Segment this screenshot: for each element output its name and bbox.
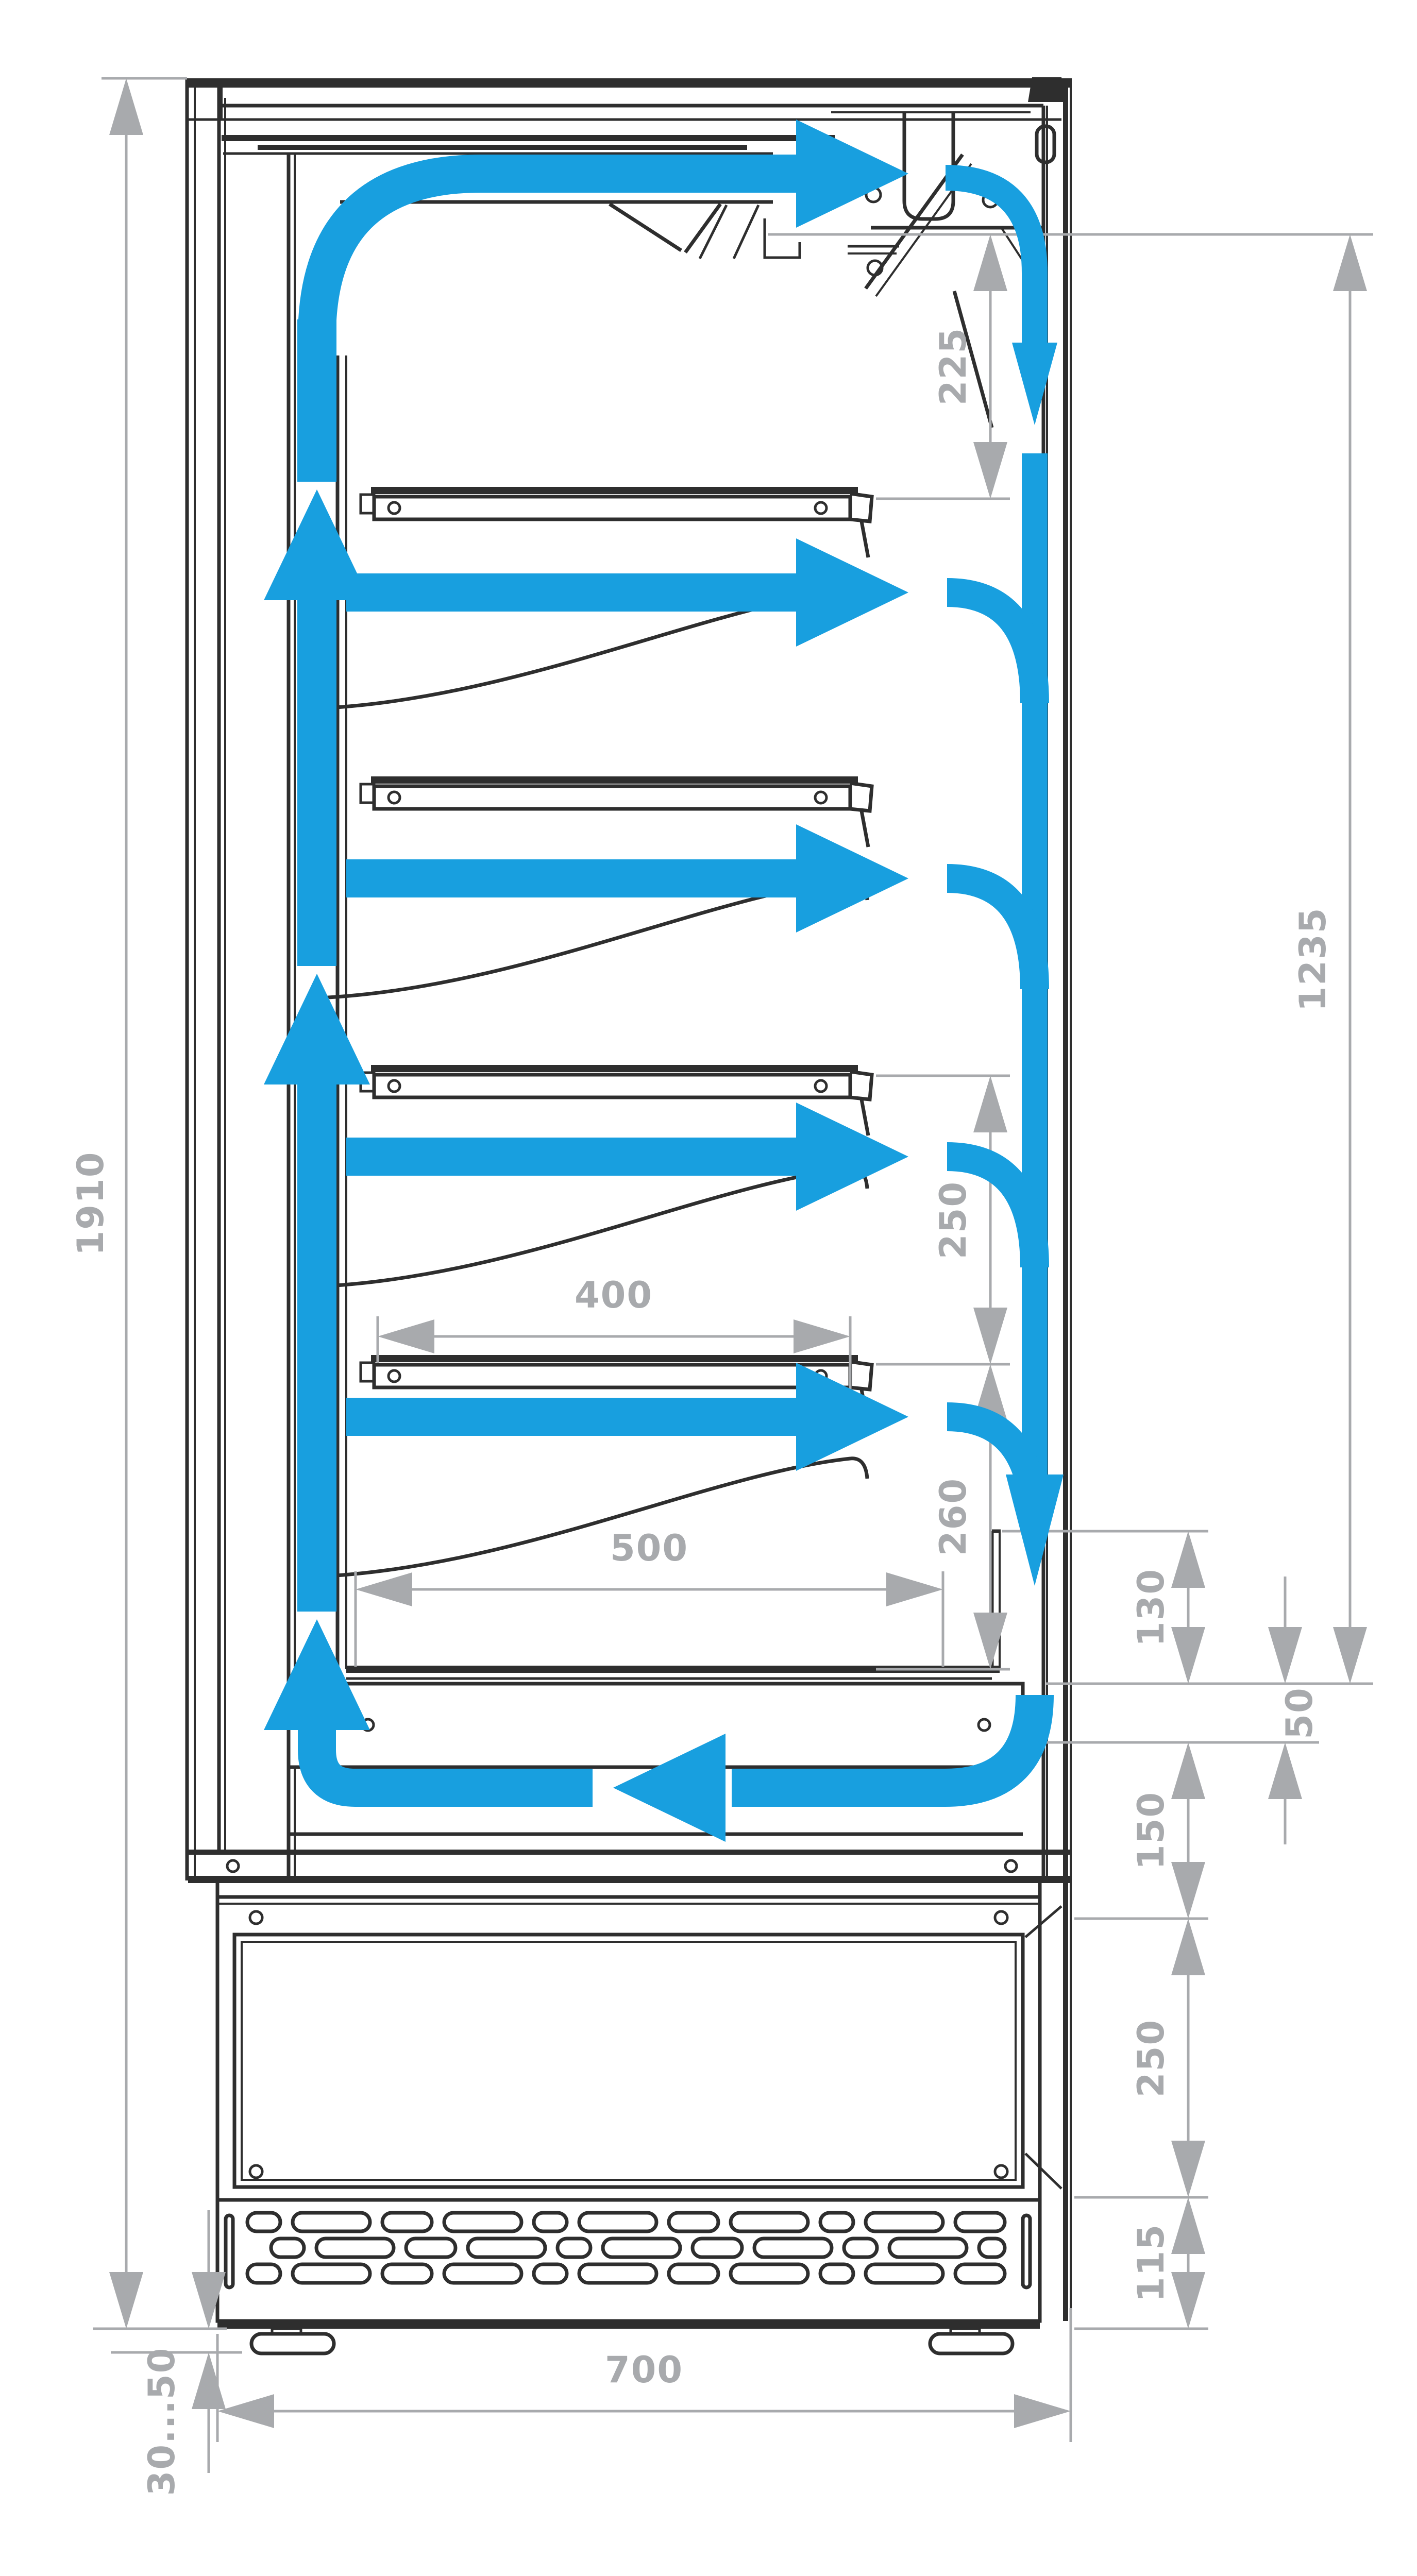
- dim-label-250-base: 250: [1130, 2019, 1172, 2097]
- dim-label-500: 500: [610, 1527, 688, 1569]
- dim-label-150: 150: [1130, 1791, 1172, 1870]
- right-arrow-icon: [796, 824, 908, 933]
- right-arrow-icon: [796, 1363, 908, 1471]
- dim-shelf-depth: 400: [378, 1274, 850, 1353]
- dim-label-1235: 1235: [1292, 907, 1334, 1012]
- shelf-4: [318, 1359, 872, 1577]
- dim-deck-flange: 50: [1268, 1577, 1321, 1844]
- dim-deck-depth: 500: [356, 1527, 943, 1606]
- dim-overall-depth: 700: [217, 2349, 1071, 2428]
- right-arrow-icon: [796, 1103, 908, 1211]
- dim-base-gap: 150: [1130, 1742, 1205, 1919]
- shelf-3: [318, 1069, 872, 1286]
- dim-label-130: 130: [1130, 1568, 1172, 1647]
- dim-label-260: 260: [932, 1478, 974, 1556]
- machine-panel: [234, 1935, 1023, 2187]
- down-arrow-icon: [1012, 343, 1057, 425]
- diagram-canvas: 1910 225 1235 250 260: [0, 0, 1417, 2576]
- right-arrow-icon: [796, 120, 908, 228]
- dim-opening-height: 1235: [1292, 234, 1367, 1684]
- foot-left: [251, 2334, 334, 2353]
- drawing-page: 1910 225 1235 250 260: [0, 0, 1417, 2576]
- dim-overall-height: 1910: [70, 78, 143, 2329]
- dim-shelf-spacing: 250: [932, 1076, 1007, 1364]
- foot-right: [930, 2334, 1013, 2353]
- bolt: [227, 1860, 239, 1872]
- bracket-slot: [1037, 126, 1054, 162]
- up-arrow-icon: [264, 974, 370, 1084]
- dim-label-50: 50: [1278, 1687, 1321, 1739]
- dim-top-clearance: 225: [932, 234, 1007, 499]
- dim-label-250-shelf: 250: [932, 1181, 974, 1259]
- dim-label-30-50: 30...50: [141, 2347, 183, 2496]
- top-cap: [1028, 77, 1066, 102]
- dim-machine-panel: 250: [1130, 1919, 1205, 2197]
- dim-label-1910: 1910: [70, 1151, 112, 1256]
- dim-vent-grille: 115: [1130, 2197, 1205, 2329]
- dim-label-115: 115: [1130, 2224, 1172, 2302]
- airflow-duct-up: [264, 319, 370, 1730]
- dim-label-225: 225: [932, 327, 974, 405]
- dim-return-inlet: 130: [1130, 1531, 1205, 1684]
- right-arrow-icon: [796, 538, 908, 647]
- up-arrow-icon: [264, 1619, 370, 1730]
- vent-grille: [217, 2200, 1040, 2329]
- dim-label-700: 700: [605, 2349, 683, 2391]
- ceiling-deflector: [610, 204, 800, 259]
- bolt: [1005, 1860, 1017, 1872]
- dim-label-400: 400: [575, 1274, 653, 1316]
